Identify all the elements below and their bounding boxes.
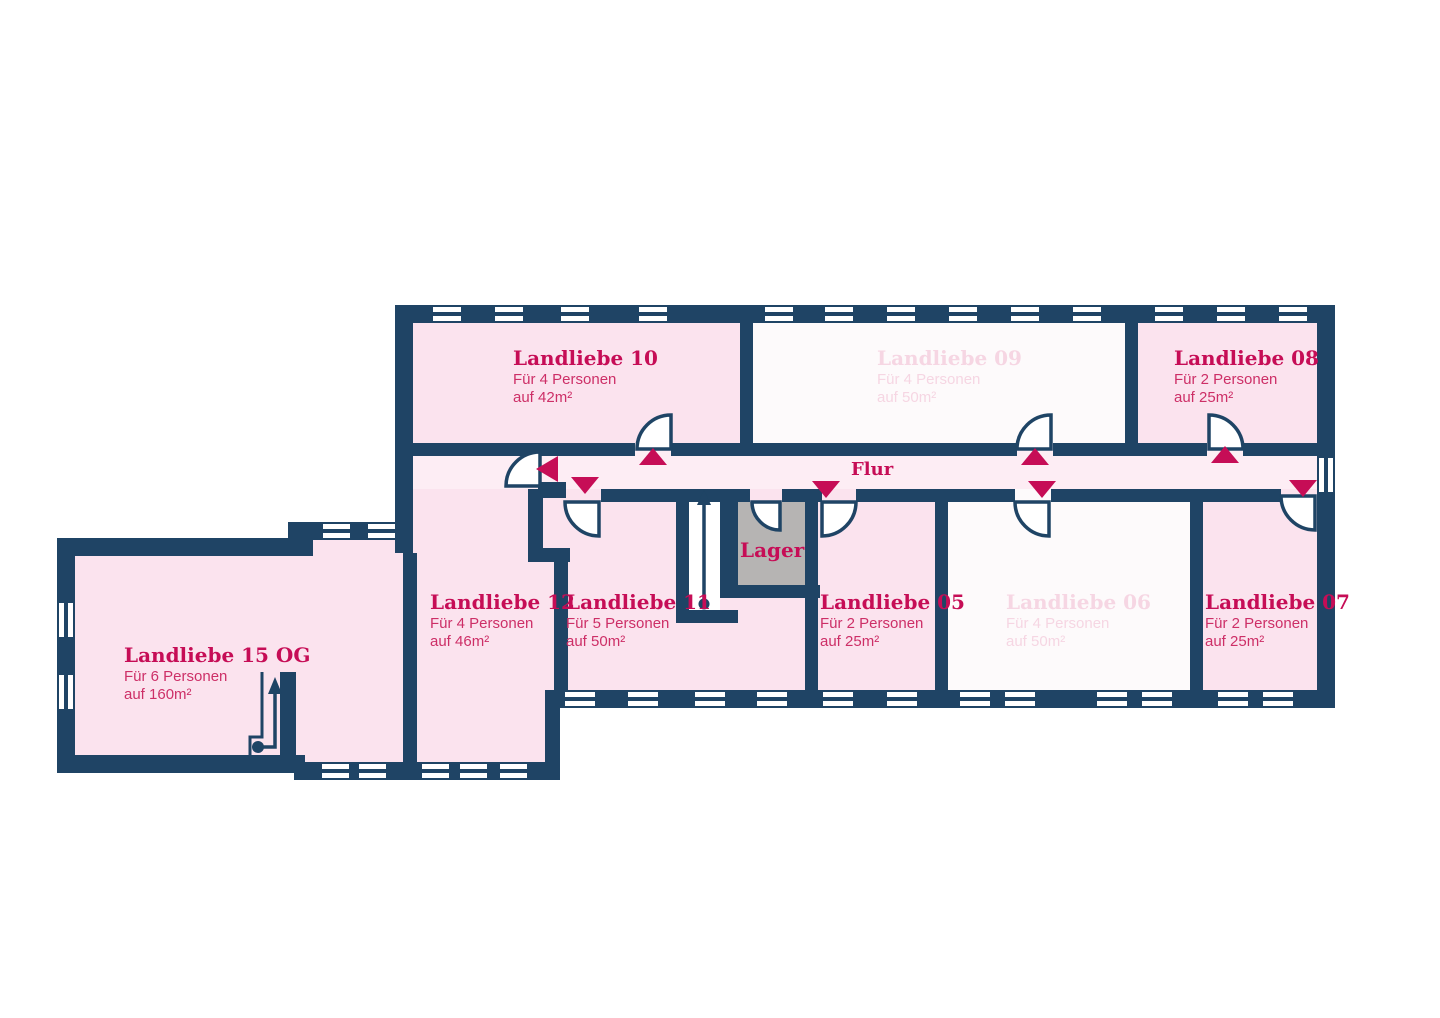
room-label-landliebe-12[interactable]: Landliebe 12 Für 4 Personen auf 46m² xyxy=(430,592,575,651)
room-area-size: auf 25m² xyxy=(820,633,965,651)
room-title: Landliebe 05 xyxy=(820,592,965,612)
room-title: Landliebe 09 xyxy=(877,348,1022,368)
window-icon xyxy=(64,603,68,637)
room-area-size: auf 50m² xyxy=(566,633,711,651)
room-title: Landliebe 08 xyxy=(1174,348,1319,368)
window-icon xyxy=(823,697,853,701)
corridor-label: Flur xyxy=(851,459,893,480)
window-icon xyxy=(433,312,461,316)
room-area-size: auf 160m² xyxy=(124,686,310,704)
window-icon xyxy=(960,697,990,701)
window-icon xyxy=(1142,697,1172,701)
room-capacity: Für 2 Personen xyxy=(820,615,965,633)
window-icon xyxy=(887,312,915,316)
room-capacity: Für 4 Personen xyxy=(513,371,658,389)
room-capacity: Für 4 Personen xyxy=(877,371,1022,389)
room-area-size: auf 50m² xyxy=(877,389,1022,407)
window-icon xyxy=(460,769,487,773)
room-title: Landliebe 12 xyxy=(430,592,575,612)
room-title: Landliebe 15 OG xyxy=(124,645,310,665)
window-icon xyxy=(565,697,595,701)
window-icon xyxy=(695,697,725,701)
window-icon xyxy=(500,769,527,773)
room-label-landliebe-05[interactable]: Landliebe 05 Für 2 Personen auf 25m² xyxy=(820,592,965,651)
floorplan-drawing xyxy=(0,0,1440,1018)
window-icon xyxy=(64,675,68,709)
window-icon xyxy=(639,312,667,316)
room-label-landliebe-15[interactable]: Landliebe 15 OG Für 6 Personen auf 160m² xyxy=(124,645,310,704)
room-label-landliebe-11[interactable]: Landliebe 11 Für 5 Personen auf 50m² xyxy=(566,592,711,651)
window-icon xyxy=(561,312,589,316)
room-capacity: Für 4 Personen xyxy=(430,615,575,633)
window-icon xyxy=(1218,697,1248,701)
window-icon xyxy=(323,529,350,533)
room-label-landliebe-06: Landliebe 06 Für 4 Personen auf 50m² xyxy=(1006,592,1151,651)
window-icon xyxy=(1217,312,1245,316)
window-icon xyxy=(949,312,977,316)
window-icon xyxy=(495,312,523,316)
room-area-size: auf 46m² xyxy=(430,633,575,651)
room-area-size: auf 42m² xyxy=(513,389,658,407)
room-title: Landliebe 10 xyxy=(513,348,658,368)
window-icon xyxy=(765,312,793,316)
window-icon xyxy=(1073,312,1101,316)
storage-label: Lager xyxy=(740,538,804,562)
room-area-size: auf 50m² xyxy=(1006,633,1151,651)
room-capacity: Für 2 Personen xyxy=(1205,615,1350,633)
room-capacity: Für 2 Personen xyxy=(1174,371,1319,389)
room-area-size: auf 25m² xyxy=(1174,389,1319,407)
window-icon xyxy=(322,769,349,773)
window-icon xyxy=(628,697,658,701)
room-label-landliebe-10[interactable]: Landliebe 10 Für 4 Personen auf 42m² xyxy=(513,348,658,407)
window-icon xyxy=(1005,697,1035,701)
window-icon xyxy=(1324,458,1328,492)
window-icon xyxy=(1155,312,1183,316)
window-icon xyxy=(1263,697,1293,701)
window-icon xyxy=(422,769,449,773)
window-icon xyxy=(359,769,386,773)
room-capacity: Für 6 Personen xyxy=(124,668,310,686)
floorplan-canvas: Landliebe 10 Für 4 Personen auf 42m² Lan… xyxy=(0,0,1440,1018)
room-label-landliebe-07[interactable]: Landliebe 07 Für 2 Personen auf 25m² xyxy=(1205,592,1350,651)
window-icon xyxy=(1279,312,1307,316)
room-label-landliebe-09: Landliebe 09 Für 4 Personen auf 50m² xyxy=(877,348,1022,407)
room-capacity: Für 5 Personen xyxy=(566,615,711,633)
window-icon xyxy=(1011,312,1039,316)
room-title: Landliebe 07 xyxy=(1205,592,1350,612)
room-capacity: Für 4 Personen xyxy=(1006,615,1151,633)
room-title: Landliebe 11 xyxy=(566,592,711,612)
room-area-size: auf 25m² xyxy=(1205,633,1350,651)
room-title: Landliebe 06 xyxy=(1006,592,1151,612)
window-icon xyxy=(368,529,395,533)
window-icon xyxy=(887,697,917,701)
room-label-landliebe-08[interactable]: Landliebe 08 Für 2 Personen auf 25m² xyxy=(1174,348,1319,407)
window-icon xyxy=(1097,697,1127,701)
window-icon xyxy=(757,697,787,701)
window-icon xyxy=(825,312,853,316)
